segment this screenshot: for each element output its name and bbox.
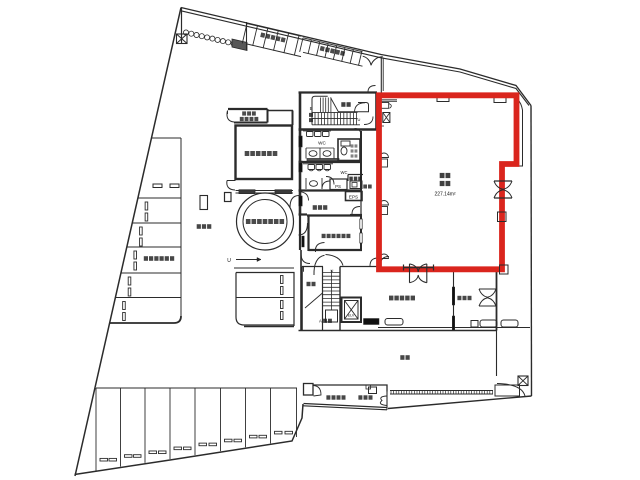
svg-text:WC: WC [341,170,348,175]
svg-text:A: A [319,319,322,324]
svg-text:B: B [310,106,313,111]
svg-text:U: U [227,258,231,264]
svg-text:PS: PS [335,184,341,189]
svg-text:U: U [358,117,361,122]
svg-text:EPS: EPS [349,195,358,200]
svg-text:ELV: ELV [348,314,355,318]
svg-text:227.14m²: 227.14m² [434,192,455,198]
svg-text:U: U [331,268,334,273]
svg-text:WC: WC [318,141,326,146]
